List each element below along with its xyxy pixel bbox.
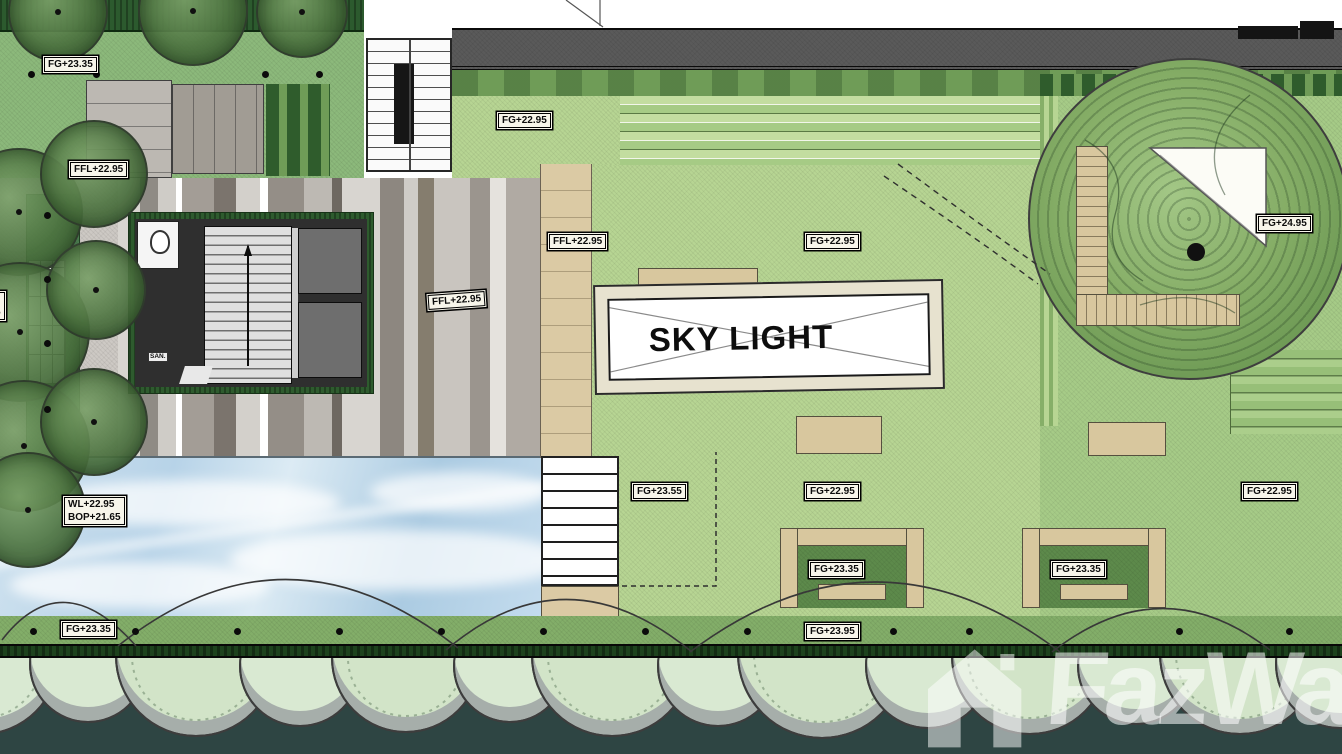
pool-reflection-cloud <box>10 562 270 608</box>
level-label-fg-pool-edge: FG+23.35 <box>62 622 115 637</box>
hedge-rows <box>266 84 330 176</box>
stair-core-wall <box>394 64 414 144</box>
garden-stairs <box>541 456 619 586</box>
level-label-fg-top-left: FG+23.35 <box>44 57 97 72</box>
level-label-ffl-top-left: FFL+22.95 <box>70 162 127 177</box>
water-level-text-clipped: WL+22.95 <box>0 293 1 306</box>
pool-level-label-clipped: WL+22.95 BOP+21.65 <box>0 292 5 320</box>
tree-canopy <box>46 240 146 340</box>
level-label-fg-lawn-right: FG+22.95 <box>1243 484 1296 499</box>
level-label-fg-stair-lawn: FG+23.55 <box>633 484 686 499</box>
pool-level-label: WL+22.95 BOP+21.65 <box>64 497 125 525</box>
planter-b-bench <box>1060 584 1128 600</box>
fazwaz-house-logo-icon <box>918 640 1036 752</box>
wood-deck-path-vertical <box>1076 146 1108 298</box>
planter-a-wall-right <box>906 528 924 608</box>
planter-b-wall-right <box>1148 528 1166 608</box>
water-level-text: WL+22.95 <box>68 498 121 511</box>
bathroom <box>137 221 179 269</box>
bottom-of-pool-text-clipped: BOP+21.65 <box>0 306 1 319</box>
skylight-structure: SKY LIGHT <box>593 279 945 395</box>
bottom-of-pool-text: BOP+21.65 <box>68 511 121 524</box>
core-room-upper <box>298 228 362 294</box>
level-label-fg-bottom-walk: FG+23.95 <box>806 624 859 639</box>
level-label-ffl-walkway: FFL+22.95 <box>549 234 606 249</box>
core-corridor-gap <box>292 228 298 378</box>
planter-a-wall-top <box>780 528 924 546</box>
swimming-pool <box>0 456 543 620</box>
sanitary-room-label: SAN. <box>148 352 168 362</box>
planter-a-bench <box>818 584 886 600</box>
pool-reflection-cloud <box>230 530 543 590</box>
watermark-text: FazWaz <box>1043 640 1342 739</box>
tree-canopy <box>256 0 348 58</box>
level-label-fg-lawn-upper: FG+22.95 <box>806 234 859 249</box>
planter-b-wall-left <box>1022 528 1040 608</box>
pergola-structure <box>172 84 264 174</box>
skylight-glass-panel: SKY LIGHT <box>607 293 930 381</box>
watermark: FazWaz <box>918 640 1342 752</box>
garden-bench <box>1088 422 1166 456</box>
wood-deck-path-horizontal <box>1076 294 1240 326</box>
level-label-fg-lawn-mid: FG+22.95 <box>806 484 859 499</box>
site-plan: SKY LIGHT <box>0 0 1342 754</box>
skylight-label: SKY LIGHT <box>581 296 900 380</box>
level-label-fg-planter-a: FG+23.35 <box>810 562 863 577</box>
exterior-stair-block <box>366 38 452 172</box>
lawn-bench-bottom <box>796 416 882 454</box>
planter-a-wall-left <box>780 528 798 608</box>
level-label-fg-planter-b: FG+23.35 <box>1052 562 1105 577</box>
door-opening <box>179 366 213 384</box>
tree-canopy <box>8 0 108 62</box>
level-label-fg-tree-deck: FG+24.95 <box>1258 216 1311 231</box>
toilet-icon <box>150 230 170 254</box>
interior-stair-shaft <box>204 226 292 384</box>
core-room-lower <box>298 302 362 378</box>
level-label-fg-upper-lawn: FG+22.95 <box>498 113 551 128</box>
tree-canopy <box>138 0 248 66</box>
wood-walkway <box>540 164 592 458</box>
stair-divider <box>409 40 411 170</box>
planter-b-wall-top <box>1022 528 1166 546</box>
stair-landing <box>541 586 619 620</box>
